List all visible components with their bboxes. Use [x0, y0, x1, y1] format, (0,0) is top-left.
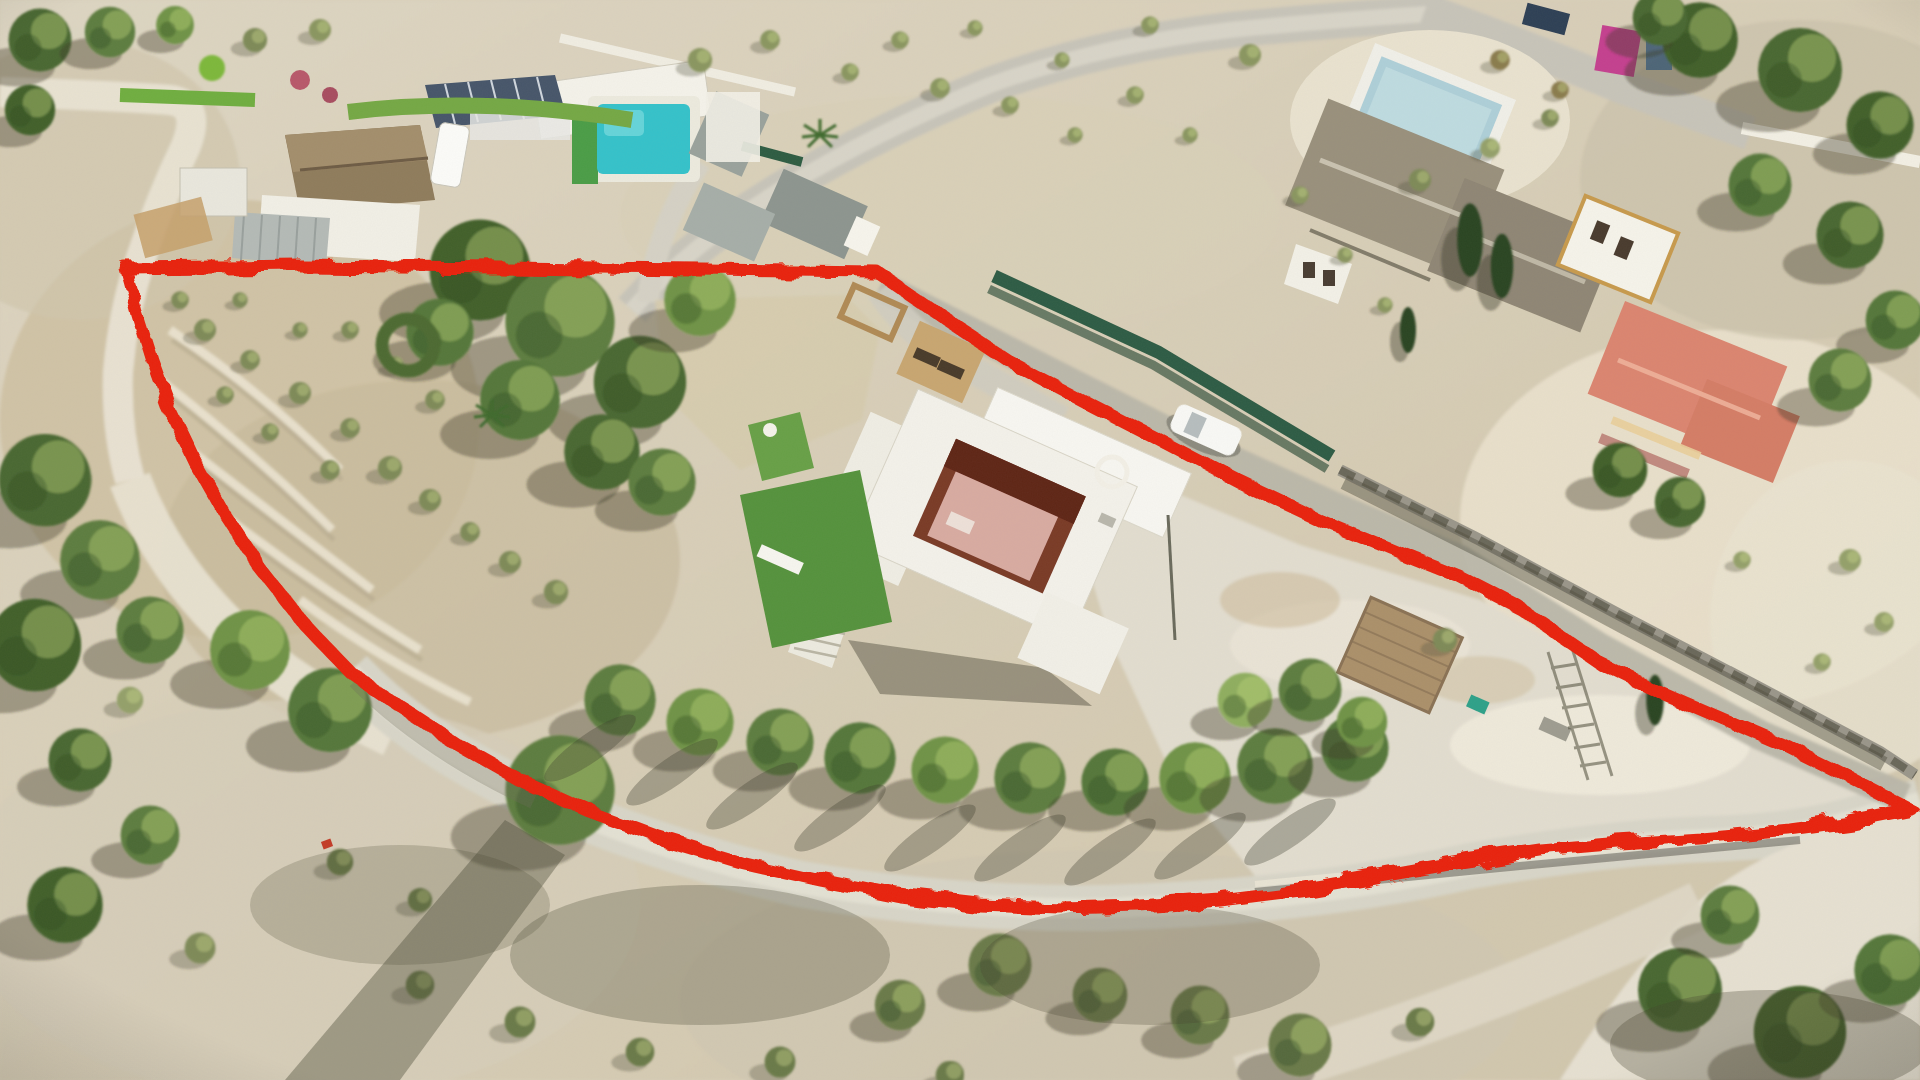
vignette	[0, 0, 1920, 1080]
aerial-photo	[0, 0, 1920, 1080]
aerial-photo-canvas	[0, 0, 1920, 1080]
